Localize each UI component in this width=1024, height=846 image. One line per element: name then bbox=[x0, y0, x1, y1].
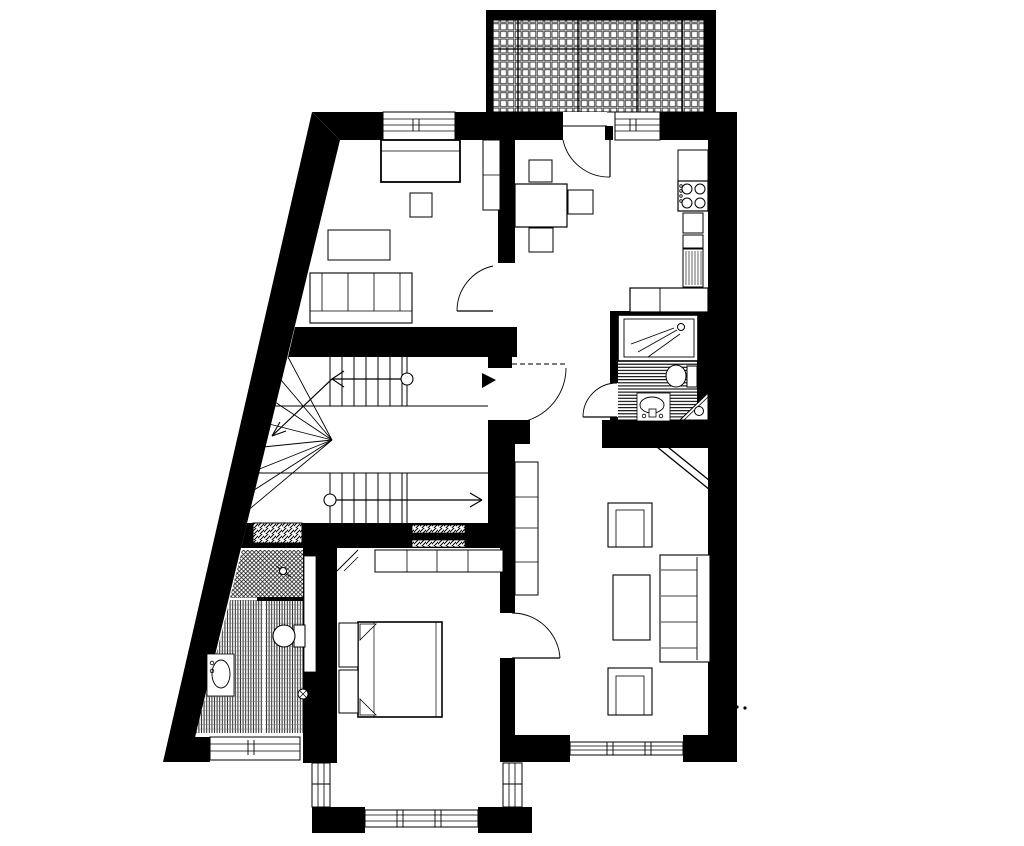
dining-table bbox=[515, 184, 567, 227]
wall-living-left-upper bbox=[500, 420, 515, 613]
bath-door-arc bbox=[583, 383, 617, 417]
bay-window-bottom bbox=[365, 810, 478, 827]
balcony-wall-top bbox=[486, 10, 716, 20]
toilet-lower-tank bbox=[294, 625, 305, 647]
bath2-window bbox=[210, 737, 300, 760]
balcony-wall-left bbox=[486, 18, 493, 112]
stair-winder-5 bbox=[263, 440, 332, 447]
bedroom-wardrobe bbox=[375, 550, 503, 572]
wall-bay-bottom-right bbox=[478, 807, 532, 833]
stair-shaft-hatch bbox=[253, 523, 302, 543]
living-sofa bbox=[660, 555, 710, 662]
toilet-lower-bowl bbox=[273, 625, 295, 647]
bath2-door-panel bbox=[304, 556, 316, 672]
nightstand-1 bbox=[339, 623, 358, 667]
nightstand-2 bbox=[339, 670, 358, 713]
floor-plan-page bbox=[0, 0, 1024, 846]
bedroom-flue-line-2 bbox=[344, 557, 358, 571]
dining-chair-north bbox=[529, 160, 552, 182]
kitchen-cabinet-top bbox=[678, 150, 708, 181]
dining-chair-east bbox=[568, 190, 593, 214]
stray-dot-2 bbox=[743, 706, 746, 709]
stair-winder-1 bbox=[288, 357, 332, 440]
bath2-shower-screen bbox=[257, 597, 303, 601]
shower bbox=[618, 315, 698, 361]
shower-head bbox=[678, 324, 685, 331]
wall-stair-right-upper bbox=[488, 357, 512, 368]
stair-winder-3 bbox=[275, 402, 332, 440]
stair-winder-2 bbox=[281, 380, 332, 440]
wall-study-bottom bbox=[288, 327, 517, 357]
entry-direction-marker bbox=[482, 373, 496, 388]
balcony-door-post bbox=[605, 126, 613, 140]
study-sofa bbox=[310, 273, 412, 323]
dining-chair-south bbox=[529, 228, 553, 252]
floor-plan-canvas bbox=[0, 0, 1024, 846]
stair-winder-6 bbox=[257, 440, 332, 470]
threshold-hatch-2 bbox=[412, 540, 465, 547]
stair-arrow-down-start bbox=[324, 494, 336, 506]
wall-bath-left-upper bbox=[610, 311, 618, 383]
washbasin-lower-bowl bbox=[212, 660, 230, 688]
stair-arrow-down-chevron-2 bbox=[470, 500, 482, 507]
wall-living-bottom-right bbox=[683, 735, 737, 762]
stray-dot-1 bbox=[735, 705, 738, 708]
stair-arrow-down-chevron-1 bbox=[470, 493, 482, 500]
coffee-table bbox=[613, 575, 650, 640]
balcony-door-arc bbox=[563, 140, 610, 177]
entry-door-arc bbox=[512, 368, 566, 423]
bookshelf bbox=[515, 462, 538, 595]
corner-diagonal-2 bbox=[663, 443, 715, 485]
study-desk bbox=[381, 140, 460, 182]
bay-window-left bbox=[312, 763, 330, 807]
wall-bay-bottom-left bbox=[312, 807, 365, 833]
stair-winder-4 bbox=[269, 424, 332, 440]
bedroom-door-arc bbox=[512, 613, 560, 658]
threshold-hatch-1 bbox=[412, 525, 465, 533]
plan-layer bbox=[163, 10, 747, 833]
balcony-wall-right bbox=[704, 12, 716, 112]
stair-arrow-up bbox=[272, 379, 407, 436]
toilet-upper-tank bbox=[687, 366, 697, 387]
kitchen-cabinet-small bbox=[683, 235, 703, 248]
study-door-arc bbox=[457, 266, 493, 311]
corner-diagonal-1 bbox=[657, 447, 710, 490]
armchair-south bbox=[608, 668, 652, 715]
bath-corner-pipe bbox=[695, 407, 704, 416]
kitchen-cabinet-mid bbox=[683, 213, 703, 233]
kitchen-window bbox=[615, 112, 660, 140]
bay-window-right bbox=[503, 763, 522, 807]
living-window bbox=[570, 742, 683, 755]
wall-study-right bbox=[498, 112, 515, 263]
washbasin-upper-faucet bbox=[649, 409, 656, 417]
balcony-floor-tiles bbox=[493, 20, 704, 112]
stair-arrow-up-start bbox=[401, 373, 413, 385]
study-table bbox=[328, 230, 390, 260]
study-side-table bbox=[410, 193, 432, 217]
wall-right bbox=[708, 112, 737, 762]
wall-bedroom-bottom-left bbox=[303, 733, 337, 763]
bath2-shower-floor bbox=[230, 550, 303, 598]
toilet-upper-bowl bbox=[666, 365, 686, 387]
bed bbox=[358, 622, 442, 717]
wall-living-bottom-left bbox=[500, 735, 570, 762]
wall-bath-left-lower bbox=[610, 417, 618, 448]
kitchen-counter bbox=[630, 288, 708, 312]
